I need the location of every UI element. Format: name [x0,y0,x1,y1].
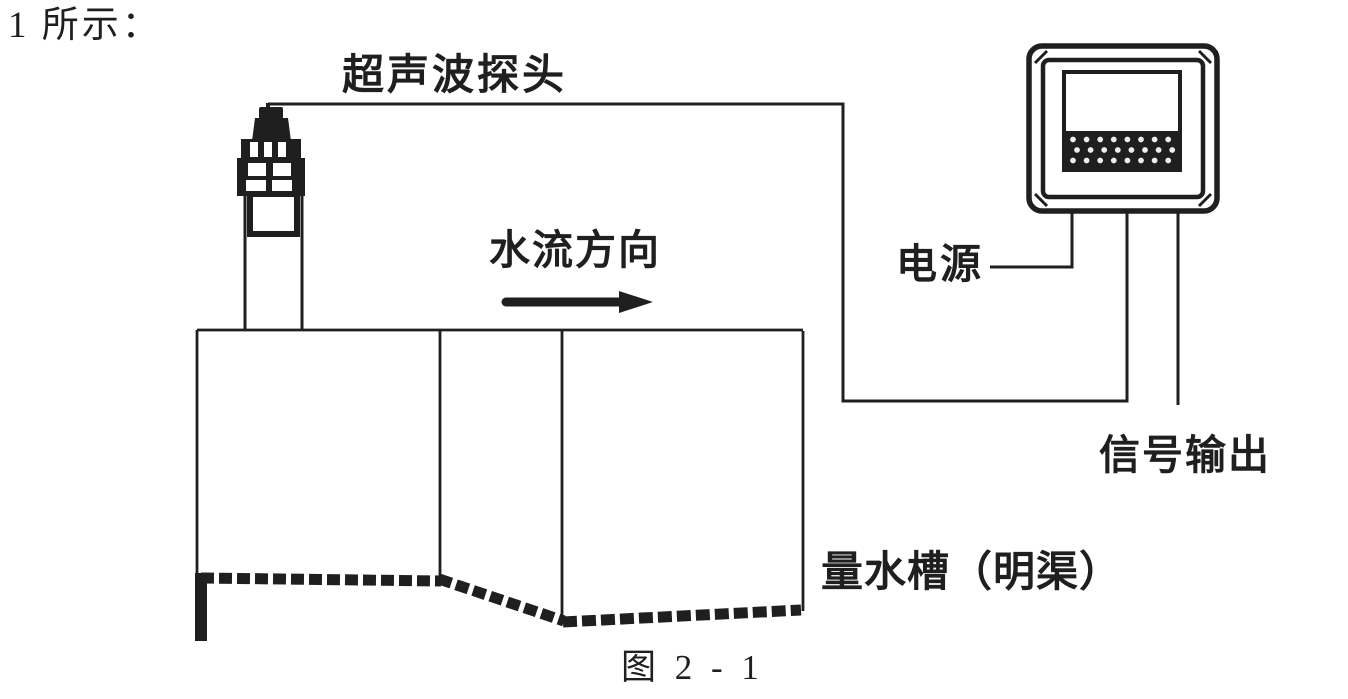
keypad-key-dot [1070,157,1077,164]
keypad-key-dot [1138,136,1145,143]
keypad-key-dot [1165,136,1172,143]
keypad-key-dot [1155,147,1162,154]
keypad-key-dot [1165,157,1172,164]
controller-drawing [1029,46,1217,211]
controller-screen [1066,74,1178,131]
probe-neck [252,118,291,141]
figure-page: 1 所示： 超声波探头 水流方向 电源 信号输出 量水槽（明渠） 图 2 - 1 [0,0,1348,699]
keypad-key-dot [1138,157,1145,164]
keypad-key-dot [1101,147,1108,154]
flume-floor-upstream [201,578,441,581]
diagram-canvas [0,0,1348,699]
intro-text: 1 所示： [8,7,162,44]
keypad-key-dot [1110,136,1117,143]
keypad-key-dot [1142,147,1149,154]
keypad-key-dot [1083,136,1090,143]
keypad-key-dot [1110,157,1117,164]
cable-probe-to-controller [268,104,1127,401]
keypad-key-dot [1128,147,1135,154]
keypad-key-dot [1169,147,1176,154]
flume-floor-downstream [563,610,801,622]
keypad-key-dot [1074,147,1081,154]
keypad-key-dot [1151,157,1158,164]
keypad-key-dot [1124,157,1131,164]
keypad-key-dot [1114,147,1121,154]
probe-label: 超声波探头 [342,54,567,96]
keypad-key-dot [1070,136,1077,143]
signal-output-label: 信号输出 [1099,435,1271,476]
flume-drawing [197,330,803,641]
figure-caption: 图 2 - 1 [621,650,764,685]
cable-power [990,209,1072,267]
keypad-key-dot [1097,136,1104,143]
keypad-key-dot [1097,157,1104,164]
probe-collar [241,139,301,161]
probe-drawing [237,103,305,330]
flow-direction-label: 水流方向 [489,230,661,271]
flow-arrow-head [619,291,653,313]
keypad-key-dot [1151,136,1158,143]
flume-floor-slope [439,579,564,621]
probe-sensor-face [250,194,297,234]
power-label: 电源 [896,244,984,285]
keypad-key-dot [1083,157,1090,164]
probe-body [237,158,305,196]
flow-arrow [506,291,653,313]
probe-cable-gland [259,107,283,119]
keypad-key-dot [1087,147,1094,154]
flume-label: 量水槽（明渠） [821,551,1122,593]
keypad-key-dot [1124,136,1131,143]
